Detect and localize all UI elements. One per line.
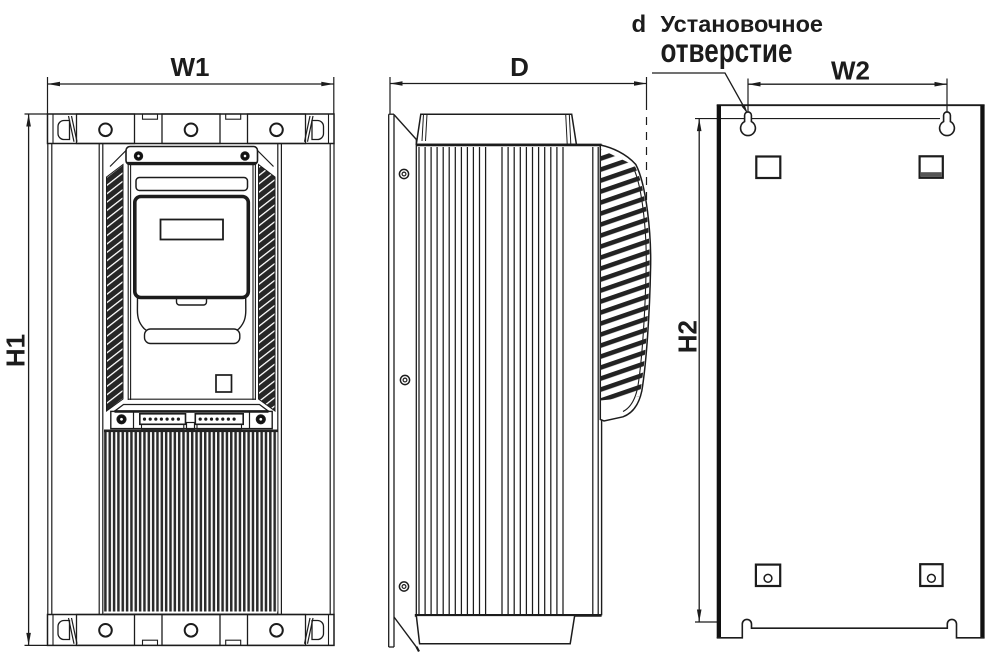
svg-text:H1: H1 <box>1 334 31 367</box>
svg-text:H2: H2 <box>673 320 703 353</box>
svg-text:W2: W2 <box>831 56 870 86</box>
svg-text:W1: W1 <box>171 52 210 82</box>
svg-text:D: D <box>510 52 529 82</box>
svg-text:d: d <box>632 11 647 38</box>
svg-text:отверстие: отверстие <box>661 33 793 70</box>
